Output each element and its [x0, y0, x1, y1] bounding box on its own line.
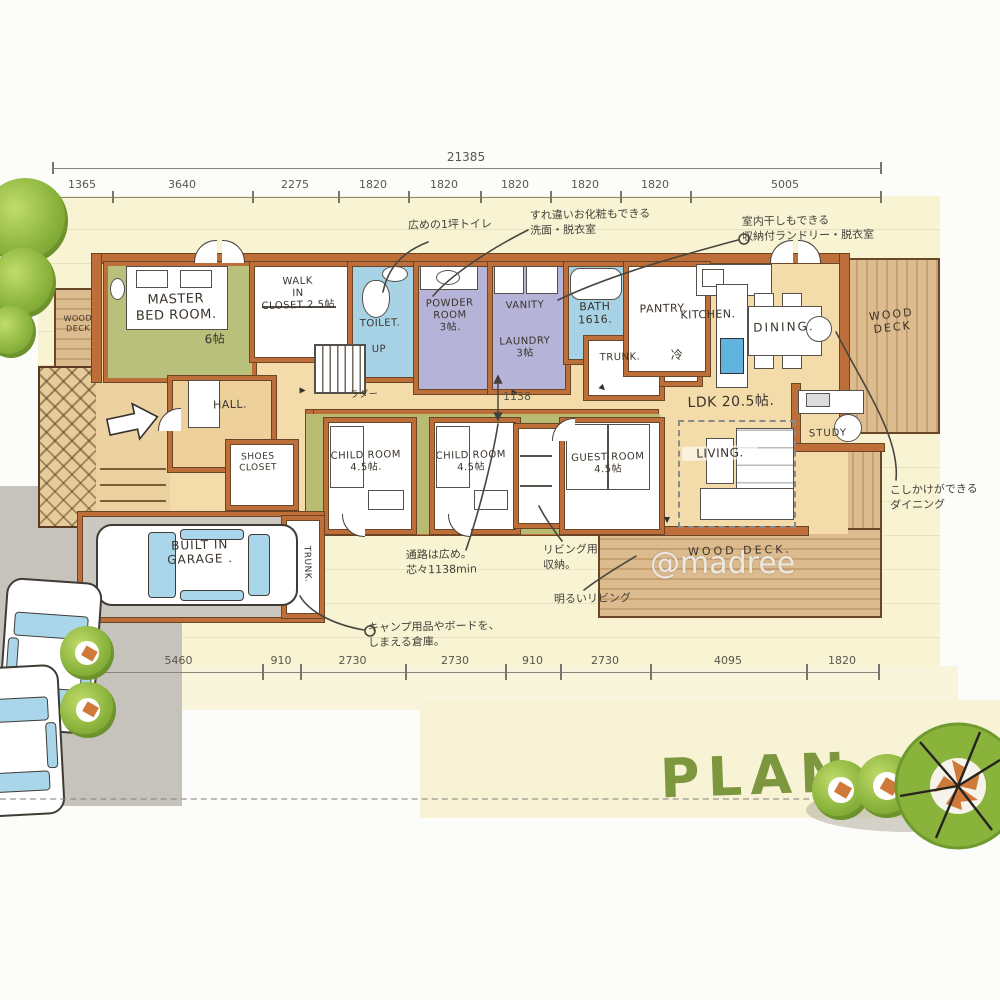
bottom-dim: 2730: [560, 654, 650, 667]
living-storage-note: リビング用 収納。: [543, 543, 599, 574]
watermark: @madree: [650, 546, 795, 581]
car-side-window: [180, 590, 244, 601]
door-marker-icon: ▲: [299, 387, 308, 393]
shoes-closet-label: SHOES CLOSET: [226, 451, 291, 474]
genkan-step: [100, 468, 166, 470]
master-bedroom-label: MASTER BED ROOM.: [112, 290, 241, 325]
bottom-dim: 910: [505, 654, 560, 667]
garage-label: BUILT IN GARAGE .: [140, 536, 261, 568]
bush-icon: [60, 626, 114, 680]
floor-plan-canvas: ▲ ▲ ▲ ▲ WOOD DECK MASTER BED ROOM. 6帖 WA…: [0, 0, 1000, 1000]
dim-tick: [880, 191, 882, 203]
dim-tick: [620, 191, 622, 203]
guest-room-label: GUEST ROOM 4.5帖: [560, 451, 657, 478]
mid-closet-shelf: [520, 455, 552, 457]
study-south-wall: [792, 444, 884, 451]
living-label: LIVING.: [682, 445, 758, 461]
bottom-dim: 910: [262, 654, 300, 667]
top-dim: 1820: [480, 178, 550, 191]
dining-note: こしかけができる ダイニング: [890, 482, 978, 513]
top-dim: 1820: [620, 178, 690, 191]
dim-tick: [252, 191, 254, 203]
bottom-dim: 5460: [95, 654, 262, 667]
bush-icon: [856, 754, 918, 818]
dim-tick: [550, 191, 552, 203]
top-dim: 2275: [252, 178, 338, 191]
bottom-dim: 1820: [806, 654, 878, 667]
top-overall-dim: 21385: [52, 150, 880, 164]
dishwasher: [720, 338, 744, 374]
door-marker-icon: ▲: [664, 516, 670, 525]
walk-in-closet-label: WALK IN CLOSET 2.5帖: [252, 275, 345, 313]
child-desk: [368, 490, 404, 510]
dining-chair: [754, 355, 774, 369]
stairs-up-label: UP: [364, 344, 394, 357]
dim-tick: [878, 664, 880, 680]
bottom-dim: 2730: [300, 654, 405, 667]
garage-note: キャンプ用品やボードを、 しまえる倉庫。: [368, 619, 500, 651]
car-icon: [0, 664, 66, 819]
study-monitor: [806, 393, 830, 407]
stairs-ladder: [314, 344, 366, 394]
dim-tick: [690, 191, 692, 203]
dim-tick: [408, 191, 410, 203]
top-dim: 3640: [112, 178, 252, 191]
toilet-label: TOILET.: [348, 317, 412, 331]
bush-icon: [60, 682, 116, 738]
vanity-label: VANITY: [490, 299, 560, 313]
dining-chair: [782, 355, 802, 369]
bottom-dimline: [95, 672, 878, 673]
fridge-label: 冷: [660, 348, 694, 363]
laundry-note: 室内干しもできる 収納付ランドリー・脱衣室: [742, 213, 874, 245]
dim-tick: [880, 162, 882, 174]
top-overall-dimline: [52, 168, 880, 169]
dim-tick: [338, 191, 340, 203]
top-dim: 1820: [550, 178, 620, 191]
toilet-note: 広めの1坪トイレ: [408, 217, 492, 233]
genkan-step: [100, 500, 166, 502]
top-seg-dimline: [52, 197, 880, 198]
vanity-counter: [526, 266, 558, 294]
car-rear-window: [0, 770, 51, 793]
top-dim: 1820: [408, 178, 480, 191]
powder-basin-bowl: [436, 270, 460, 285]
dim-tick: [112, 191, 114, 203]
genkan-step: [100, 484, 166, 486]
vanity-note: すれ違いお化粧もできる 洗面・脱衣室: [530, 207, 651, 239]
bright-living-note: 明るいリビング: [554, 591, 631, 607]
corridor-note: 通路は広め。 芯々1138min: [406, 547, 477, 578]
bottom-dim: 2730: [405, 654, 505, 667]
child-room-1-label: CHILD ROOM 4.5帖.: [324, 449, 409, 475]
corridor-width-dim: 1138: [503, 390, 547, 403]
laundry-label: LAUNDRY 3帖: [490, 335, 561, 361]
hall-label: HALL.: [200, 397, 260, 412]
wood-deck-west-label: WOOD DECK: [56, 313, 100, 333]
living-south-wall: [658, 527, 808, 535]
top-dim: 5005: [690, 178, 880, 191]
dining-chair: [782, 293, 802, 307]
top-dim: 1365: [52, 178, 112, 191]
pillow: [180, 270, 212, 288]
master-size-label: 6帖: [190, 331, 240, 347]
dining-label: DINING.: [748, 319, 820, 335]
child-room-2-label: CHILD ROOM 4.5帖: [430, 449, 513, 475]
mid-closet-shelf: [520, 485, 552, 487]
child-desk: [474, 490, 508, 510]
bath-label: BATH 1616.: [564, 299, 627, 327]
study-label: STUDY: [796, 427, 860, 441]
trunk-south-label: TRUNK.: [285, 532, 313, 597]
pillow: [136, 270, 168, 288]
bottom-dim: 4095: [650, 654, 806, 667]
toilet-basin: [382, 266, 408, 282]
car-side-window: [45, 722, 58, 769]
sofa-chaise: [700, 488, 794, 520]
toilet-bowl: [362, 280, 390, 318]
stairs-ladder-label: ラダー: [342, 389, 386, 401]
dining-chair: [754, 293, 774, 307]
top-dim: 1820: [338, 178, 408, 191]
kitchen-label: KITCHEN.: [668, 307, 748, 322]
car-windshield: [0, 696, 49, 724]
trunk-north-label: TRUNK.: [586, 351, 654, 365]
bathtub: [570, 268, 622, 300]
powder-room-label: POWDER ROOM 3帖.: [416, 297, 485, 335]
washer: [494, 266, 524, 294]
dim-tick: [480, 191, 482, 203]
ldk-label: LDK 20.5帖.: [666, 392, 796, 412]
